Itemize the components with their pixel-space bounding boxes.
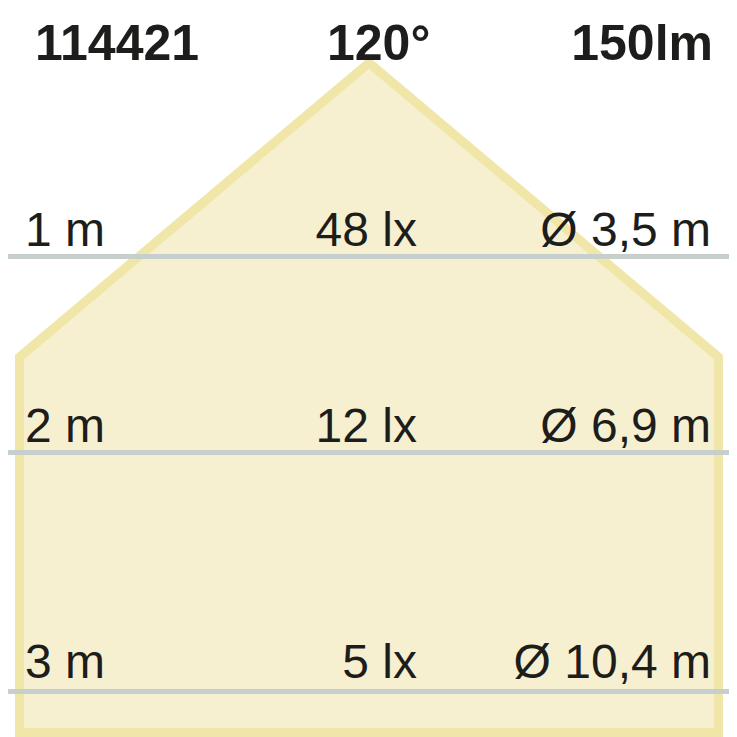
distance-label: 2 m xyxy=(25,402,105,450)
table-row-3m: 3 m 5 lx Ø 10,4 m xyxy=(0,638,737,688)
distance-label: 1 m xyxy=(25,206,105,254)
table-row-2m: 2 m 12 lx Ø 6,9 m xyxy=(0,402,737,452)
table-row-1m: 1 m 48 lx Ø 3,5 m xyxy=(0,206,737,256)
illuminance-value: 12 lx xyxy=(316,402,417,450)
light-cone xyxy=(0,0,737,737)
beam-diameter-value: Ø 10,4 m xyxy=(514,638,711,686)
header-row: 114421 120° 150lm xyxy=(0,18,737,70)
beam-angle: 120° xyxy=(327,18,430,68)
beam-diameter-value: Ø 3,5 m xyxy=(540,206,711,254)
illuminance-value: 48 lx xyxy=(316,206,417,254)
article-number: 114421 xyxy=(35,18,199,68)
beam-diameter-value: Ø 6,9 m xyxy=(540,402,711,450)
light-distribution-diagram: 114421 120° 150lm 1 m 48 lx Ø 3,5 m 2 m … xyxy=(0,0,737,737)
illuminance-value: 5 lx xyxy=(342,638,417,686)
luminous-flux: 150lm xyxy=(571,18,713,68)
distance-label: 3 m xyxy=(25,638,105,686)
distance-line-3m xyxy=(8,689,729,694)
